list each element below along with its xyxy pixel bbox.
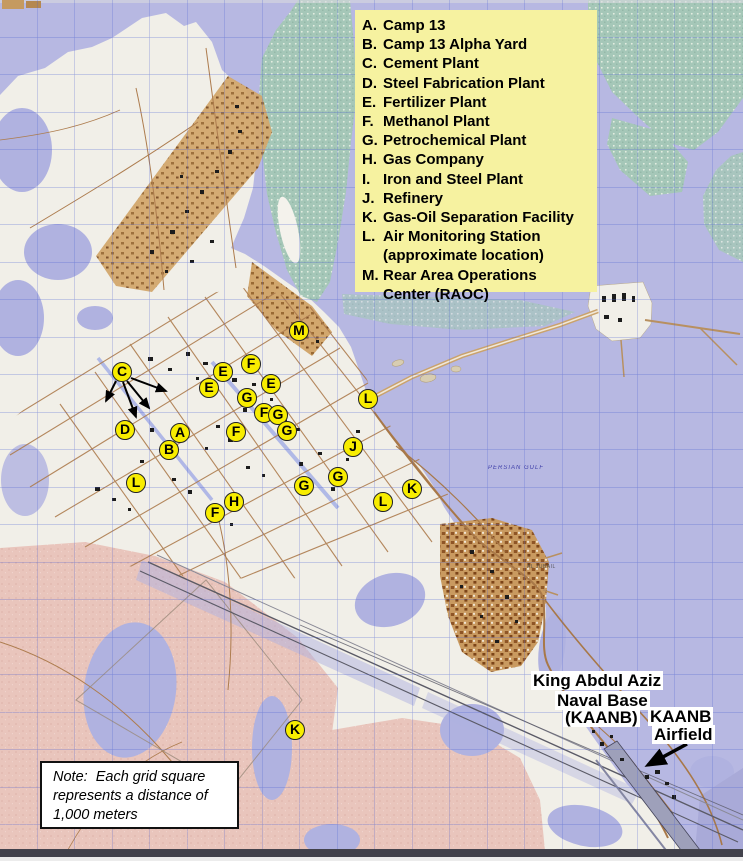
map-marker: D <box>115 420 135 440</box>
legend-item: G. Petrochemical Plant <box>362 131 593 150</box>
map-marker-letter: F <box>232 423 241 439</box>
legend-item: L. Air Monitoring Station <box>362 227 593 246</box>
legend-item-label: Center (RAOC) <box>383 285 593 304</box>
map-marker: K <box>285 720 305 740</box>
legend-item-letter <box>362 246 383 265</box>
legend-item-letter: J. <box>362 189 383 208</box>
legend-item-letter: A. <box>362 16 383 35</box>
map-marker-letter: E <box>204 379 213 395</box>
naval-base-label-line3: (KAANB) <box>563 708 640 727</box>
map-marker: G <box>237 388 257 408</box>
map-marker: E <box>213 362 233 382</box>
map-marker-letter: G <box>273 406 284 422</box>
legend-item-label: Gas Company <box>383 150 593 169</box>
legend-item-label: Air Monitoring Station <box>383 227 593 246</box>
map-marker-letter: F <box>260 404 269 420</box>
legend-item-label: Steel Fabrication Plant <box>383 74 593 93</box>
map-marker-letter: F <box>211 504 220 520</box>
map-marker-letter: M <box>293 322 305 338</box>
legend-item-letter: F. <box>362 112 383 131</box>
map-marker: C <box>112 362 132 382</box>
legend-item-letter: H. <box>362 150 383 169</box>
town-name-label: AL JUBAIL <box>527 564 556 570</box>
note-line1: Note: Each grid square <box>53 769 205 785</box>
note-line3: 1,000 meters <box>53 807 138 823</box>
legend-item-label: Camp 13 Alpha Yard <box>383 35 593 54</box>
map-marker-letter: G <box>242 389 253 405</box>
map-marker-letter: D <box>120 421 130 437</box>
legend-box: A. Camp 13 B. Camp 13 Alpha Yard C. Ceme… <box>355 10 597 292</box>
map-marker: J <box>343 437 363 457</box>
legend-item: M. Rear Area Operations <box>362 266 593 285</box>
map-screenshot: A. Camp 13 B. Camp 13 Alpha Yard C. Ceme… <box>0 0 743 861</box>
map-marker: G <box>328 467 348 487</box>
legend-item: I. Iron and Steel Plant <box>362 170 593 189</box>
map-marker-letter: B <box>164 441 174 457</box>
map-marker: L <box>373 492 393 512</box>
scale-note-box: Note: Each grid square represents a dist… <box>40 761 239 829</box>
map-marker: M <box>289 321 309 341</box>
legend-item-letter: C. <box>362 54 383 73</box>
map-marker-letter: L <box>379 493 388 509</box>
note-line2: represents a distance of <box>53 788 208 804</box>
map-marker: H <box>224 492 244 512</box>
map-marker-letter: L <box>132 474 141 490</box>
map-marker-letter: K <box>407 480 417 496</box>
bottom-neatline <box>0 849 743 857</box>
sea-name-label: PERSIAN GULF <box>488 465 544 471</box>
legend-item: E. Fertilizer Plant <box>362 93 593 112</box>
legend-item-letter: D. <box>362 74 383 93</box>
naval-base-label-line1: King Abdul Aziz <box>531 671 663 690</box>
legend-item-letter: B. <box>362 35 383 54</box>
map-marker: E <box>199 378 219 398</box>
legend-item: (approximate location) <box>362 246 593 265</box>
legend-item-letter: L. <box>362 227 383 246</box>
map-marker: G <box>277 421 297 441</box>
map-marker: L <box>126 473 146 493</box>
legend-item-letter: E. <box>362 93 383 112</box>
legend-item-label: Methanol Plant <box>383 112 593 131</box>
legend-item-label: Petrochemical Plant <box>383 131 593 150</box>
legend-item: D. Steel Fabrication Plant <box>362 74 593 93</box>
map-marker-letter: G <box>282 422 293 438</box>
airfield-label-line1: KAANB <box>648 707 713 726</box>
legend-item-letter <box>362 285 383 304</box>
legend-item-label: Rear Area Operations <box>383 266 593 285</box>
legend-item: K. Gas-Oil Separation Facility <box>362 208 593 227</box>
legend-item: F. Methanol Plant <box>362 112 593 131</box>
map-marker-letter: L <box>364 390 373 406</box>
map-marker-letter: E <box>266 375 275 391</box>
map-marker-letter: H <box>229 493 239 509</box>
legend-item-label: Iron and Steel Plant <box>383 170 593 189</box>
map-marker-letter: G <box>299 477 310 493</box>
bottom-margin <box>0 857 743 861</box>
map-marker-letter: K <box>290 721 300 737</box>
map-marker-letter: F <box>247 355 256 371</box>
map-marker: F <box>205 503 225 523</box>
map-marker: E <box>261 374 281 394</box>
legend-item-letter: G. <box>362 131 383 150</box>
map-marker: L <box>358 389 378 409</box>
map-marker: G <box>294 476 314 496</box>
map-marker-letter: E <box>218 363 227 379</box>
legend-item-letter: M. <box>362 266 383 285</box>
legend-item: J. Refinery <box>362 189 593 208</box>
map-marker: K <box>402 479 422 499</box>
map-marker-letter: G <box>333 468 344 484</box>
legend-item-label: (approximate location) <box>383 246 593 265</box>
map-marker: F <box>226 422 246 442</box>
map-marker-letter: C <box>117 363 127 379</box>
legend-item-letter: I. <box>362 170 383 189</box>
legend-item-letter: K. <box>362 208 383 227</box>
map-marker: F <box>241 354 261 374</box>
map-marker-letter: J <box>349 438 357 454</box>
map-marker-letter: A <box>175 424 185 440</box>
legend-item-label: Camp 13 <box>383 16 593 35</box>
legend-item: A. Camp 13 <box>362 16 593 35</box>
airfield-label-line2: Airfield <box>652 725 715 744</box>
legend-item: H. Gas Company <box>362 150 593 169</box>
legend-item-label: Cement Plant <box>383 54 593 73</box>
legend-item: Center (RAOC) <box>362 285 593 304</box>
map-marker: B <box>159 440 179 460</box>
legend-item-label: Fertilizer Plant <box>383 93 593 112</box>
legend-item: B. Camp 13 Alpha Yard <box>362 35 593 54</box>
legend-item-label: Refinery <box>383 189 593 208</box>
legend-item: C. Cement Plant <box>362 54 593 73</box>
legend-item-label: Gas-Oil Separation Facility <box>383 208 593 227</box>
